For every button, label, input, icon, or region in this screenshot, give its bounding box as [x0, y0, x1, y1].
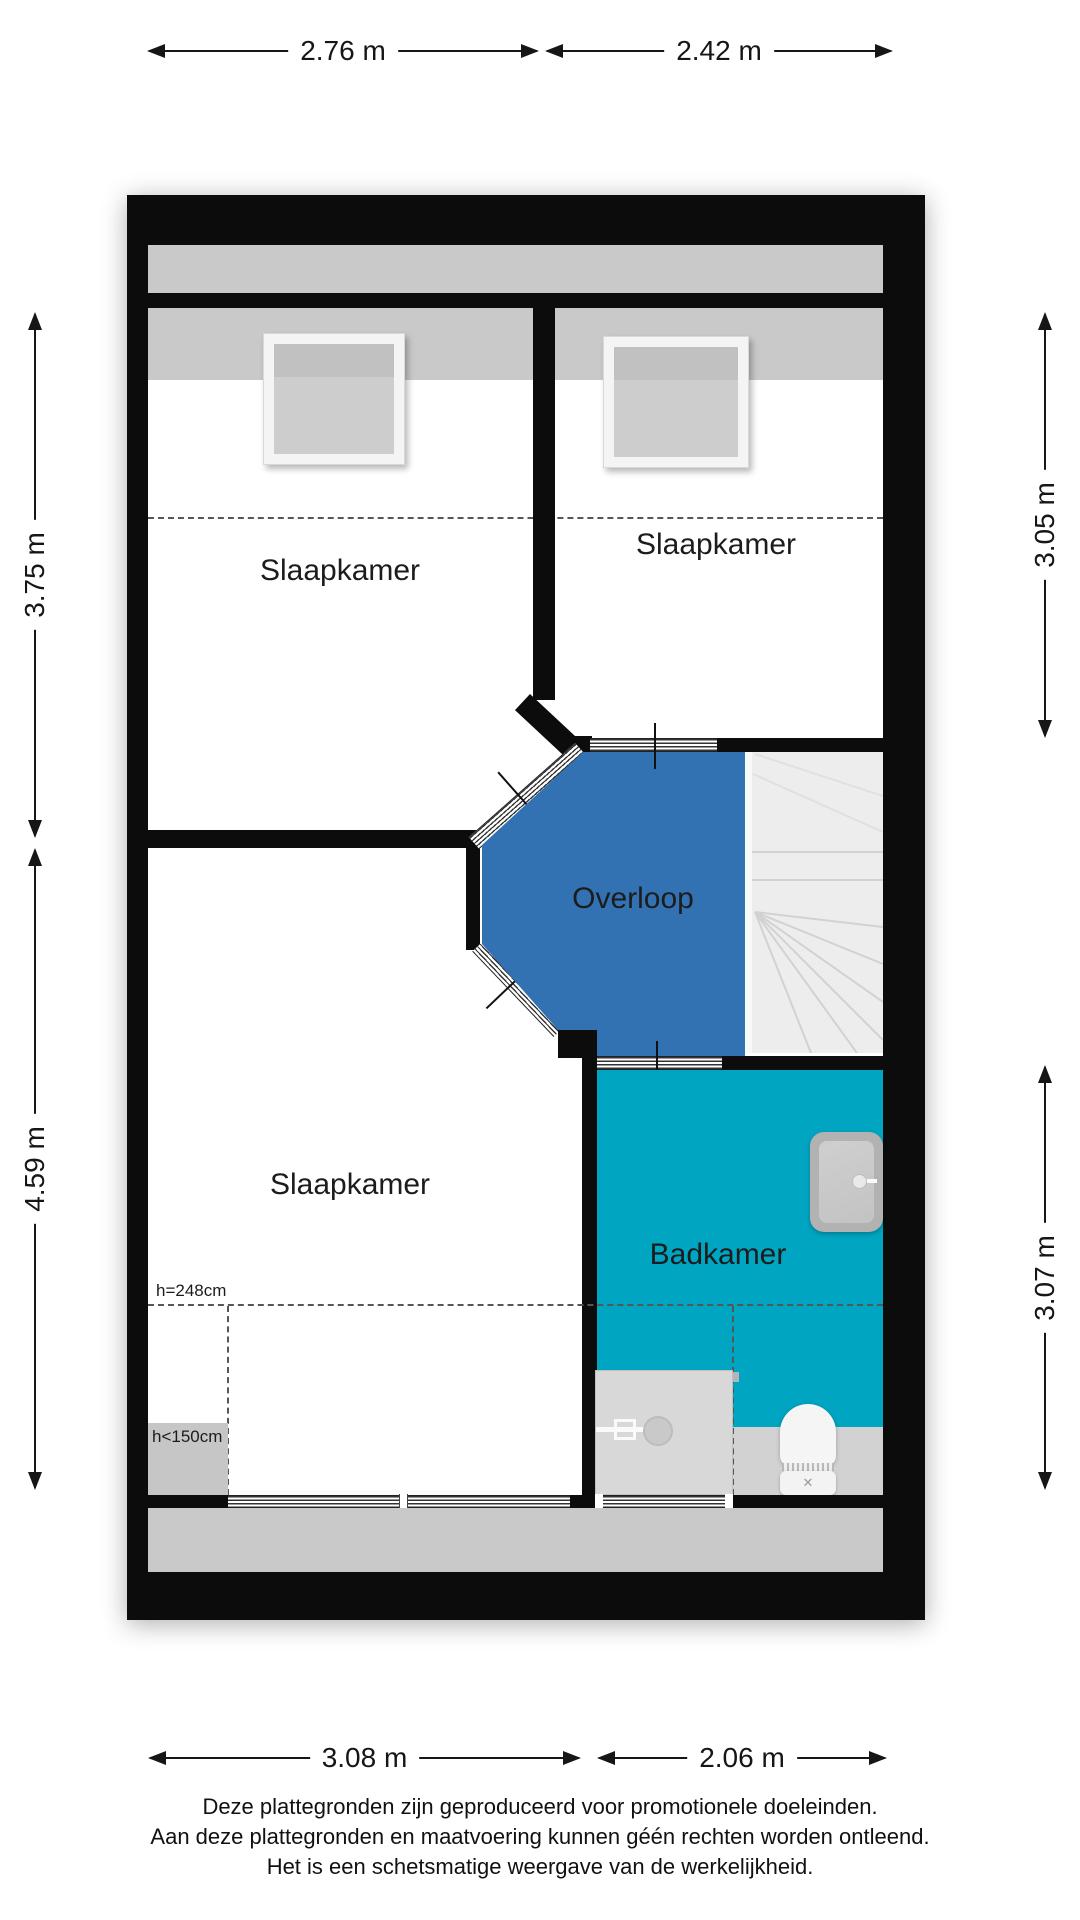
dimension-right-lower: 3.07 m: [1031, 1065, 1059, 1490]
roof-window-right: [603, 336, 749, 468]
shower-mixer-icon: [614, 1419, 636, 1440]
room-label-bedroom-top-left: Slaapkamer: [260, 554, 420, 588]
wall-bottom-right-segment: [733, 1495, 883, 1508]
arrow-up-icon: [1038, 312, 1052, 330]
wall-corner-landing-bathroom: [558, 1030, 597, 1058]
dimension-label: 2.06 m: [687, 1742, 797, 1774]
dimension-top-right: 2.42 m: [545, 37, 893, 65]
room-label-bathroom: Badkamer: [650, 1238, 787, 1272]
arrow-left-icon: [148, 1751, 166, 1765]
window-end-cap: [725, 1494, 733, 1509]
window-bottom-c: [603, 1495, 725, 1508]
staircase-treads-icon: [745, 752, 883, 1053]
wall-landing-left: [466, 838, 480, 950]
wall-bedroom-topleft-bottom: [148, 830, 477, 848]
arrow-up-icon: [1038, 1065, 1052, 1083]
door-tick: [654, 723, 656, 769]
arrow-left-icon: [597, 1751, 615, 1765]
window-bottom-b: [408, 1495, 570, 1508]
dimension-label: 2.76 m: [288, 35, 398, 67]
room-label-landing: Overloop: [572, 882, 694, 916]
wall-bottom-mid-segment: [570, 1495, 595, 1508]
arrow-right-icon: [869, 1751, 887, 1765]
window-glass: [274, 344, 394, 454]
roof-slope-strip-top: [148, 245, 883, 293]
staircase: [745, 752, 883, 1053]
faucet-knob-icon: [852, 1174, 867, 1189]
arrow-down-icon: [28, 820, 42, 838]
dimension-label: 3.08 m: [310, 1742, 420, 1774]
room-label-bedroom-top-right: Slaapkamer: [636, 528, 796, 562]
disclaimer-line-3: Het is een schetsmatige weergave van de …: [0, 1852, 1080, 1882]
low-ceiling-annotation: h<150cm: [152, 1427, 222, 1447]
toilet-flush-icon: ✕: [803, 1475, 814, 1491]
wall-bedroom-topright-bottom: [717, 738, 883, 752]
dimension-top-left: 2.76 m: [147, 37, 539, 65]
divider-wall-top-bedrooms: [533, 308, 555, 700]
height-248-dashed-line: [148, 1304, 883, 1306]
dimension-bottom-left: 3.08 m: [148, 1744, 581, 1772]
disclaimer-line-2: Aan deze plattegronden en maatvoering ku…: [0, 1822, 1080, 1852]
arrow-up-icon: [28, 312, 42, 330]
height-limit-dashed-line-top: [148, 517, 883, 519]
floor-plan-page: 2.76 m 2.42 m 3.75 m 4.59 m 3.05 m 3.07 …: [0, 0, 1080, 1920]
arrow-right-icon: [875, 44, 893, 58]
arrow-down-icon: [1038, 720, 1052, 738]
interior-wall-top: [148, 293, 883, 308]
toilet: ✕: [780, 1404, 836, 1495]
dimension-label: 2.42 m: [664, 35, 774, 67]
dimension-right-upper: 3.05 m: [1031, 312, 1059, 738]
dimension-bottom-right: 2.06 m: [597, 1744, 887, 1772]
roof-window-left: [263, 333, 405, 465]
arrow-down-icon: [28, 1472, 42, 1490]
dimension-label: 3.05 m: [1027, 470, 1063, 580]
wall-bathroom-top: [722, 1056, 883, 1070]
arrow-right-icon: [563, 1751, 581, 1765]
disclaimer-text: Deze plattegronden zijn geproduceerd voo…: [0, 1792, 1080, 1882]
window-end-cap: [595, 1494, 603, 1509]
window-bottom-a: [228, 1495, 400, 1508]
dimension-label: 4.59 m: [17, 1114, 53, 1224]
wall-bottom-left-segment: [148, 1495, 228, 1508]
arrow-down-icon: [1038, 1472, 1052, 1490]
arrow-left-icon: [147, 44, 165, 58]
shower-drain-icon: [643, 1416, 673, 1446]
room-label-bedroom-bottom-left: Slaapkamer: [270, 1168, 430, 1202]
dimension-left-lower: 4.59 m: [21, 848, 49, 1490]
ceiling-height-annotation: h=248cm: [156, 1281, 226, 1301]
sink: [810, 1132, 883, 1232]
arrow-up-icon: [28, 848, 42, 866]
window-divider: [399, 1494, 408, 1509]
roof-slope-strip-bottom: [148, 1508, 883, 1572]
toilet-bowl-icon: [780, 1404, 836, 1466]
dimension-label: 3.75 m: [17, 520, 53, 630]
arrow-left-icon: [545, 44, 563, 58]
toilet-seat-hinge-icon: [782, 1463, 834, 1471]
dimension-label: 3.07 m: [1027, 1223, 1063, 1333]
disclaimer-line-1: Deze plattegronden zijn geproduceerd voo…: [0, 1792, 1080, 1822]
shower-tray: [595, 1370, 733, 1495]
dimension-left-upper: 3.75 m: [21, 312, 49, 838]
arrow-right-icon: [521, 44, 539, 58]
window-glass: [614, 347, 738, 457]
